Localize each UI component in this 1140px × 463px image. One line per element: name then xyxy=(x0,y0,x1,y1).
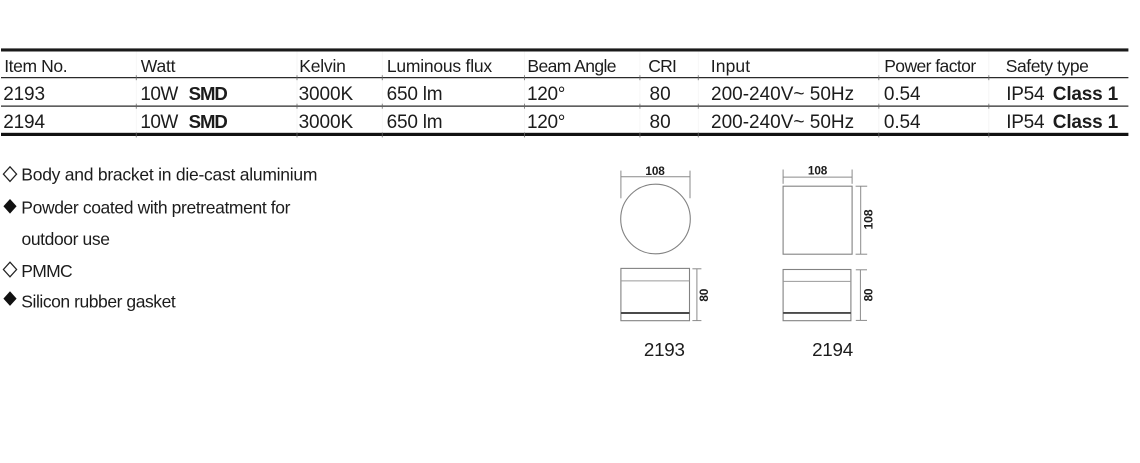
svg-text:108: 108 xyxy=(645,164,665,178)
svg-text:80: 80 xyxy=(650,84,671,105)
svg-text:outdoor use: outdoor use xyxy=(22,229,110,249)
svg-text:10W: 10W xyxy=(140,84,178,105)
svg-text:650 lm: 650 lm xyxy=(387,112,443,133)
svg-text:200-240V~ 50Hz: 200-240V~ 50Hz xyxy=(711,112,854,133)
svg-text:108: 108 xyxy=(862,209,876,229)
svg-text:3000K: 3000K xyxy=(299,112,354,133)
svg-text:Watt: Watt xyxy=(141,56,176,76)
svg-text:120°: 120° xyxy=(527,112,565,133)
svg-text:Item No.: Item No. xyxy=(4,56,67,76)
svg-text:120°: 120° xyxy=(527,84,565,105)
svg-text:80: 80 xyxy=(697,288,711,301)
svg-text:Luminous flux: Luminous flux xyxy=(387,56,492,76)
svg-text:2194: 2194 xyxy=(812,339,853,360)
svg-text:SMD: SMD xyxy=(189,83,228,104)
svg-text:IP54: IP54 xyxy=(1006,112,1045,133)
svg-text:80: 80 xyxy=(650,112,671,133)
svg-text:80: 80 xyxy=(861,288,875,301)
svg-text:0.54: 0.54 xyxy=(884,112,921,133)
svg-text:Body and bracket in die-cast a: Body and bracket in die-cast aluminium xyxy=(21,164,317,184)
svg-text:Class 1: Class 1 xyxy=(1053,112,1119,133)
svg-text:3000K: 3000K xyxy=(299,84,354,105)
svg-text:Powder coated with pretreatmen: Powder coated with pretreatment for xyxy=(21,198,290,218)
svg-text:2194: 2194 xyxy=(3,112,45,133)
svg-text:Input: Input xyxy=(711,56,750,76)
svg-text:IP54: IP54 xyxy=(1006,84,1045,105)
svg-text:Kelvin: Kelvin xyxy=(299,56,345,76)
svg-text:Class 1: Class 1 xyxy=(1053,84,1119,105)
svg-text:2193: 2193 xyxy=(644,339,685,360)
svg-text:10W: 10W xyxy=(140,112,178,133)
svg-text:Safety type: Safety type xyxy=(1006,56,1089,76)
svg-text:PMMC: PMMC xyxy=(21,261,72,281)
svg-text:SMD: SMD xyxy=(189,111,228,132)
svg-text:CRI: CRI xyxy=(648,56,676,76)
svg-text:Silicon rubber gasket: Silicon rubber gasket xyxy=(21,292,176,312)
svg-text:Beam Angle: Beam Angle xyxy=(527,56,616,76)
svg-text:108: 108 xyxy=(808,163,828,177)
svg-text:0.54: 0.54 xyxy=(884,84,921,105)
svg-text:2193: 2193 xyxy=(3,84,45,105)
svg-text:200-240V~ 50Hz: 200-240V~ 50Hz xyxy=(711,84,854,105)
svg-text:Power factor: Power factor xyxy=(884,56,976,76)
svg-text:650 lm: 650 lm xyxy=(387,84,443,105)
